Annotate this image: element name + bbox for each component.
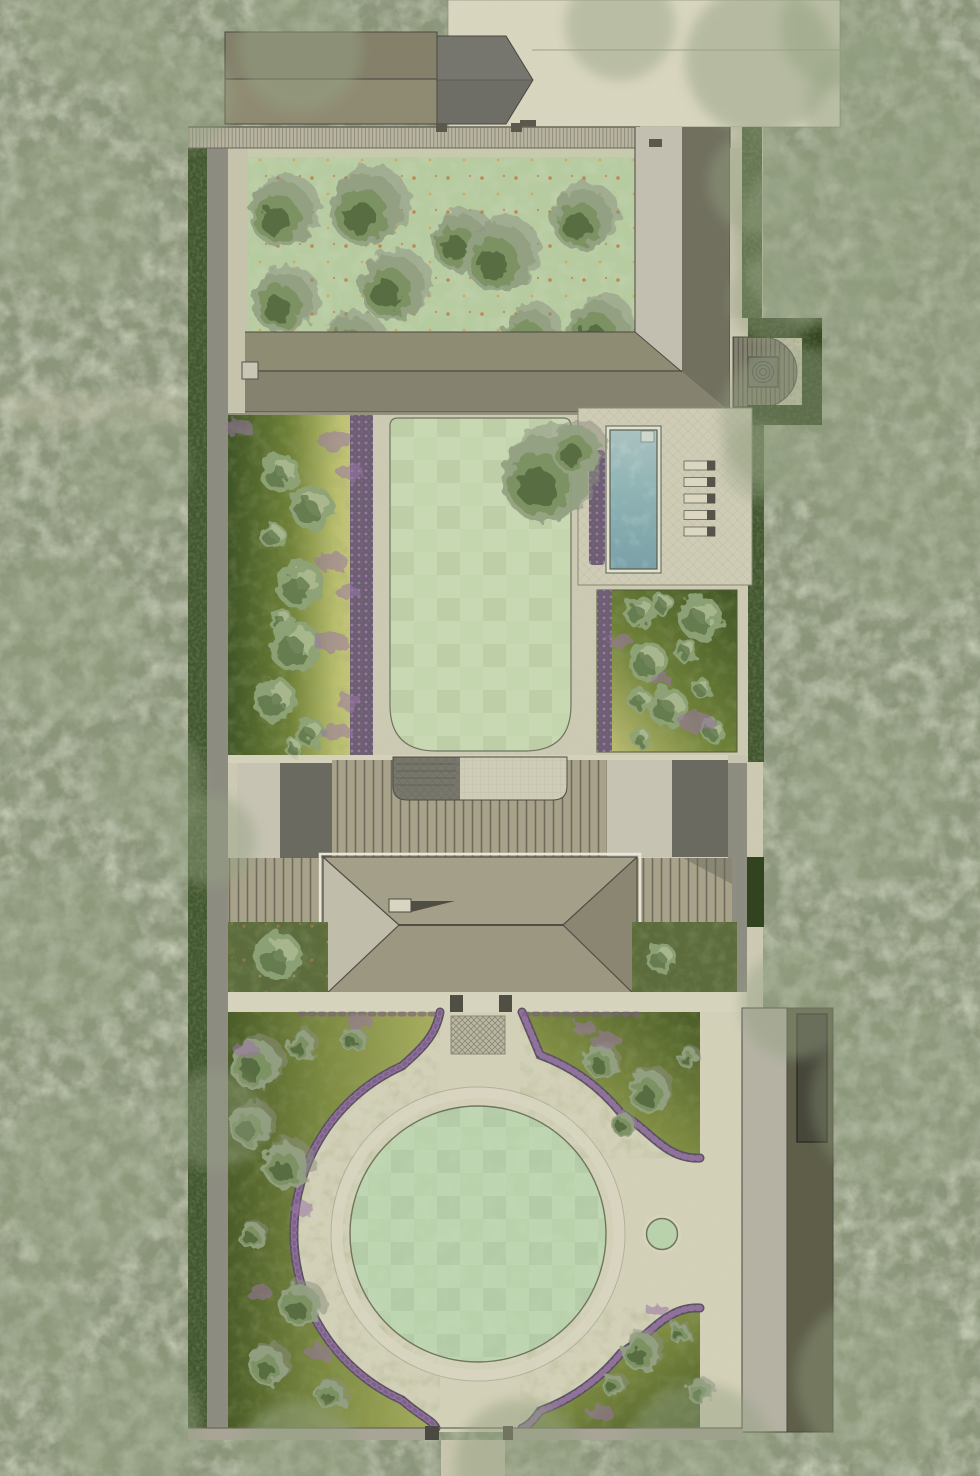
tree-canopy [70, 410, 190, 530]
south-gate-post-west [425, 1426, 439, 1440]
l-building-inner-slope [635, 127, 682, 372]
site-plan [0, 0, 980, 1476]
flower-patch [572, 1021, 596, 1035]
sun-lounger [684, 477, 715, 487]
flower-patch [337, 464, 364, 479]
circle-lawn-texture [350, 1106, 606, 1362]
northwest-flat-roof [280, 763, 332, 858]
shrub [646, 943, 676, 973]
flower-patch [608, 633, 632, 647]
l-building-south-upper-slope [245, 332, 682, 372]
flower-patch [645, 1303, 669, 1317]
tree-canopy [708, 130, 812, 234]
flower-patch [233, 1042, 260, 1057]
flower-patch [336, 694, 363, 709]
flower-patch [290, 1201, 314, 1215]
tree-canopy [740, 949, 850, 1059]
flower-patch [335, 585, 359, 599]
shrub [253, 678, 297, 722]
shrub [674, 638, 698, 662]
shrub [652, 593, 674, 615]
flower-patch [321, 724, 351, 741]
porch-post-west [450, 995, 463, 1013]
l-building-south-lower-slope [245, 372, 730, 412]
north-gate-post-east [511, 123, 522, 132]
shrub [276, 561, 324, 609]
tree-canopy [164, 794, 256, 886]
tree-canopy [0, 1095, 165, 1265]
shrub [678, 596, 722, 640]
pool-water-texture [610, 430, 657, 569]
shrub [285, 739, 303, 757]
flower-patch [678, 712, 714, 732]
garage-roof-west-strip [742, 1008, 787, 1432]
shrub [254, 932, 302, 980]
tree-canopy [722, 422, 802, 502]
flower-patch [305, 1344, 332, 1359]
front-garden [228, 1012, 742, 1432]
l-building-gate-mark [649, 139, 662, 147]
small-circle-lawn [647, 1219, 678, 1250]
flower-patch [313, 632, 349, 652]
shrub [631, 728, 651, 748]
west-path-ticks [207, 127, 228, 1432]
sun-lounger [684, 461, 715, 471]
orchard-north-strip [248, 148, 635, 157]
east-hedge-house [747, 857, 764, 927]
flower-patch [591, 1032, 621, 1049]
shrub [290, 486, 334, 530]
tree-canopy [795, 1295, 965, 1465]
sun-lounger [684, 510, 715, 520]
shrub [260, 453, 300, 493]
northeast-flat-roof [672, 760, 728, 857]
tree-canopy [783, 715, 953, 885]
pool-steps [641, 431, 654, 442]
northeast-terrace-roof [607, 760, 672, 857]
shrub [624, 596, 656, 628]
flower-patch [316, 553, 349, 572]
shrub [270, 621, 322, 673]
house-zone [228, 755, 747, 1013]
tree-canopy [165, 1070, 265, 1170]
flower-patch [245, 1284, 272, 1299]
entry-landing-hatch [451, 1016, 505, 1054]
flower-patch [224, 420, 254, 437]
tree-canopy [730, 255, 820, 345]
shrub [691, 678, 711, 698]
sun-lounger [684, 527, 715, 537]
flower-patch [347, 1014, 374, 1029]
shrub [260, 523, 286, 549]
east-bed-lavender-flowers [597, 590, 612, 752]
porch-post-east [499, 995, 512, 1013]
site-plan-canvas [0, 0, 980, 1476]
l-building-chimney [242, 362, 258, 379]
flower-patch [587, 1404, 614, 1419]
north-gate-post-west [436, 123, 447, 132]
flower-patch [652, 674, 673, 686]
middle-garden [228, 408, 752, 757]
sun-lounger [684, 494, 715, 504]
north-wall-hatch [188, 127, 640, 148]
flower-patch [318, 431, 354, 451]
house-rooflight [389, 899, 411, 912]
